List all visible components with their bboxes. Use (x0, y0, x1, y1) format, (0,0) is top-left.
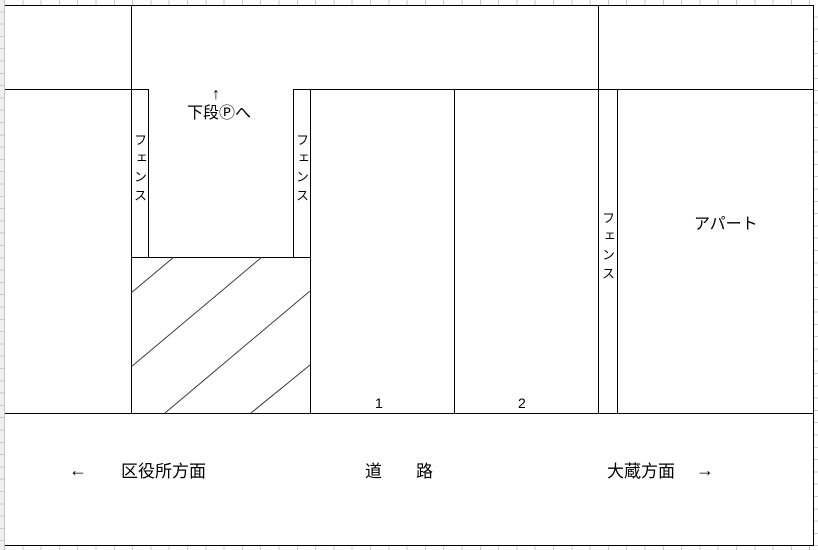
spot-1-label: 1 (375, 396, 383, 410)
upper-exit-label: 下段Ⓟへ (187, 106, 251, 122)
east-arrow-icon: → (696, 461, 714, 479)
road-label-left: 道 (365, 463, 382, 480)
parking-map-diagram: ↑ 下段Ⓟへ フェンス フェンス フェンス アパート 1 2 ← 区役所方面 道… (0, 0, 818, 550)
fence-label-left: フェンス (133, 133, 146, 207)
east-destination-label: 大蔵方面 (607, 463, 675, 480)
upper-exit-arrow-icon: ↑ (212, 87, 220, 103)
right-fence-outer-line (598, 5, 599, 414)
hatched-slope-area (131, 257, 311, 414)
west-arrow-icon: ← (69, 461, 87, 479)
right-fence-inner-line (617, 89, 618, 414)
top-border-line (5, 5, 814, 6)
upper-wall-left-segment (5, 89, 148, 90)
upper-wall-right-segment (293, 89, 814, 90)
road-label-right: 路 (416, 463, 433, 480)
fence-label-right: フェンス (601, 211, 614, 285)
grid-ticks-bottom (5, 546, 818, 550)
road-edge-line (5, 413, 814, 414)
spot-divider-line (454, 89, 455, 414)
apartment-label: アパート (694, 217, 758, 233)
bottom-border-line (5, 545, 814, 546)
fence-label-middle: フェンス (295, 133, 308, 207)
right-border-line (813, 5, 814, 546)
left-fence-inner-line (148, 89, 149, 258)
grid-ticks-right (814, 5, 818, 550)
west-destination-label: 区役所方面 (121, 463, 206, 480)
grid-ticks-left (0, 0, 5, 550)
spot-2-label: 2 (518, 396, 526, 410)
